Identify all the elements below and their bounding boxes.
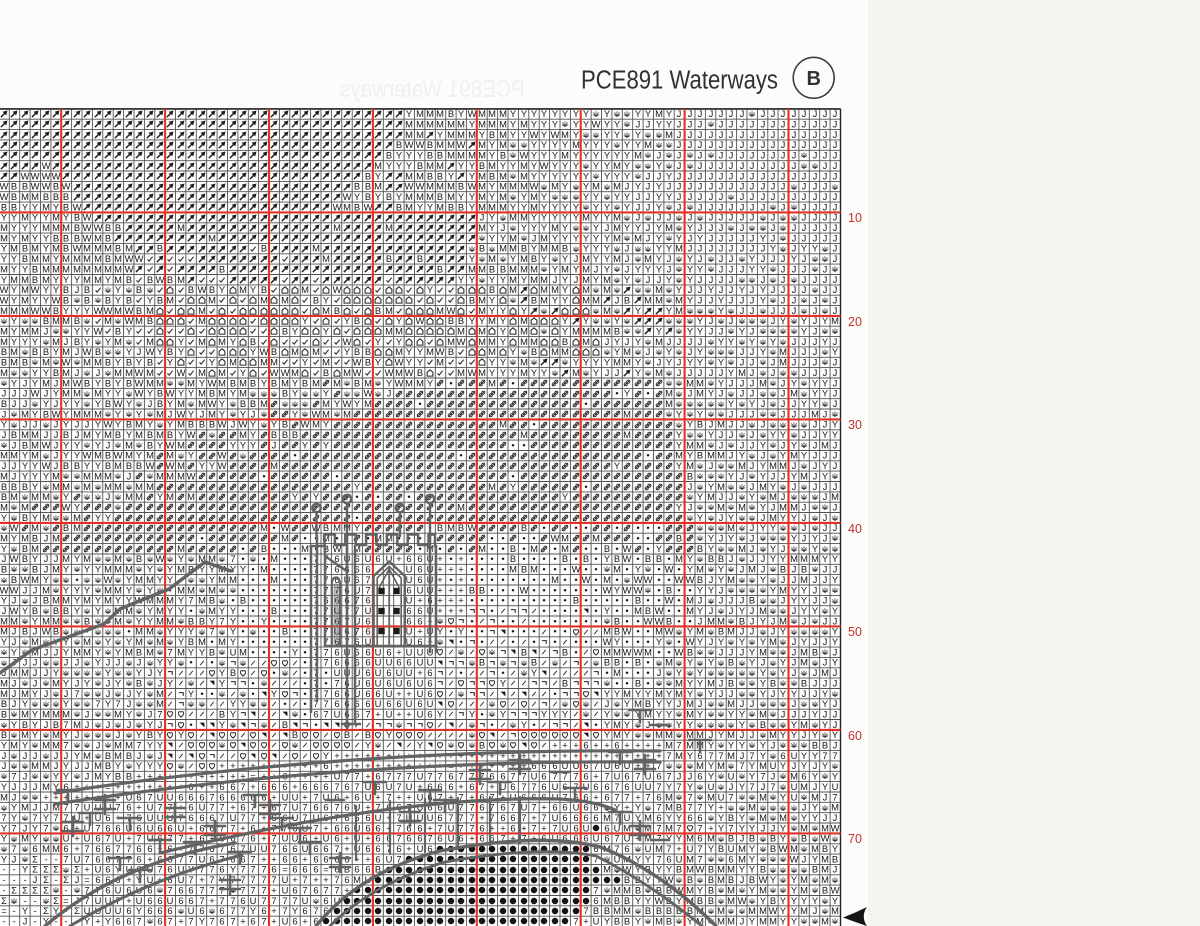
svg-text:30: 30 bbox=[848, 418, 862, 432]
svg-text:YMYMM7JMM7YYYYB+++6++6++++M7MM: YMYMM7JMM7YYYYB+++6++6++++M7MMYYYYJBBJ bbox=[1, 740, 837, 751]
svg-text:60: 60 bbox=[848, 729, 862, 743]
svg-text:70: 70 bbox=[848, 832, 862, 846]
svg-text:40: 40 bbox=[848, 522, 862, 536]
svg-text:PCE891 Waterways: PCE891 Waterways bbox=[340, 76, 525, 103]
svg-text:MYYBMJJMMWMWMMYWWMBMWWMWBMWMYY: MYYBMJJMMWMWMMYWWMBMWWMWBMWMYYYMYYMYJJYM… bbox=[0, 367, 837, 378]
svg-text:10: 10 bbox=[848, 211, 862, 225]
svg-text:50: 50 bbox=[848, 625, 862, 639]
svg-text:PCE891 Waterways: PCE891 Waterways bbox=[581, 67, 778, 95]
svg-text:20: 20 bbox=[848, 315, 862, 329]
svg-text:B: B bbox=[806, 68, 820, 90]
